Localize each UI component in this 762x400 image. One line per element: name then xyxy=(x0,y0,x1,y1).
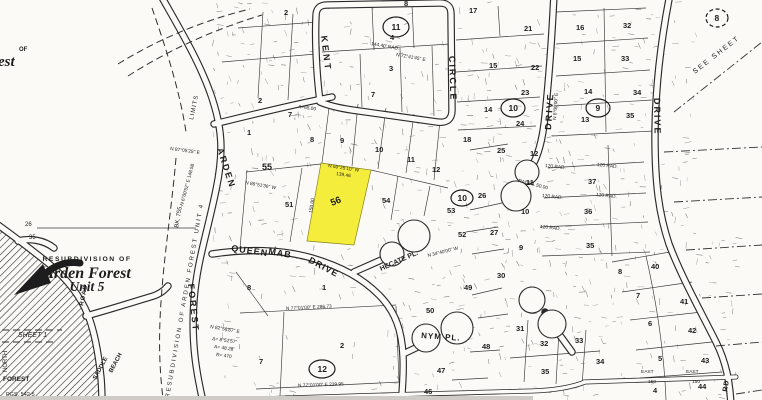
margin-note: 26 xyxy=(25,222,32,228)
lot-number: 48 xyxy=(482,342,490,351)
scan-strip xyxy=(0,396,533,400)
lot-number: 2 xyxy=(284,8,288,17)
lot-number: 34 xyxy=(596,357,605,366)
lot-number: 8 xyxy=(404,0,408,8)
lot-number: 46 xyxy=(424,387,432,396)
lot-number: 3 xyxy=(389,64,393,73)
lot-number: 24 xyxy=(516,119,525,128)
lot-number: 37 xyxy=(588,177,596,186)
lot-number: 14 xyxy=(584,87,593,96)
lot-number: 54 xyxy=(382,196,391,205)
lot-number: 36 xyxy=(584,207,592,216)
lot-number: 26 xyxy=(478,191,486,200)
lot-number: 40 xyxy=(651,262,659,271)
lot-number: 8 xyxy=(247,283,251,292)
plat-map-canvas: RESUBDIVISION OF Arden Forest Unit 5 OF … xyxy=(0,0,762,400)
lot-number: 34 xyxy=(633,88,642,97)
lot-number: 22 xyxy=(531,63,539,72)
lot-number: 52 xyxy=(458,230,466,239)
lot-number: 11 xyxy=(407,155,415,164)
circled-block-number: 12 xyxy=(318,364,328,374)
lot-number: 15 xyxy=(489,61,497,70)
street-label: CIRCLE xyxy=(447,56,459,102)
lot-number: 33 xyxy=(621,54,629,63)
lot-number: 18 xyxy=(463,135,471,144)
lot-number: 7 xyxy=(636,291,640,300)
lot-number: 51 xyxy=(285,200,293,209)
street-label: DRIVE xyxy=(652,98,663,136)
bearing-text: 150 xyxy=(692,379,700,385)
map-subtitle: RESUBDIVISION OF xyxy=(43,256,132,263)
lot-number: 33 xyxy=(575,336,583,345)
corner-fragment-est: est xyxy=(0,54,15,70)
lot-number: 8 xyxy=(618,267,622,276)
lot-number: 25 xyxy=(497,146,505,155)
lot-number: 53 xyxy=(447,206,455,215)
lot-number: 27 xyxy=(490,228,498,237)
lot-number: 7 xyxy=(288,110,292,119)
corner-fragment-of: OF xyxy=(19,47,28,53)
lot-number: 41 xyxy=(680,297,688,306)
lot-number: 7 xyxy=(371,90,375,99)
cul-de-sac xyxy=(398,220,430,252)
bearing-text: EAST xyxy=(641,369,654,375)
margin-note: FOREST xyxy=(3,376,29,383)
lot-number: 13 xyxy=(581,115,589,124)
lot-number: 47 xyxy=(437,366,445,375)
lot-number: 9 xyxy=(519,243,523,252)
circled-block-number: 11 xyxy=(392,22,401,32)
circled-block-number: 9 xyxy=(596,103,601,113)
paper-background xyxy=(0,0,762,400)
lot-number: 23 xyxy=(521,88,529,97)
bearing-text: EAST xyxy=(686,369,699,375)
cul-de-sac xyxy=(538,310,566,338)
lot-number: 43 xyxy=(701,356,709,365)
lot-number: 42 xyxy=(688,326,696,335)
lot-number: 14 xyxy=(484,105,493,114)
lot-number: 8 xyxy=(310,135,314,144)
lot-number: 6 xyxy=(648,319,652,328)
lot-number: 50 xyxy=(426,306,434,315)
lot-number: 35 xyxy=(541,367,549,376)
bearing-text: 150 xyxy=(648,379,656,385)
lot-number: 15 xyxy=(573,54,581,63)
margin-note: NORTH xyxy=(3,351,9,372)
lot-number: 12 xyxy=(530,149,538,158)
lot-number: 30 xyxy=(497,271,505,280)
lot-number: 31 xyxy=(516,324,524,333)
lot-number: 9 xyxy=(340,136,344,145)
plat-map: RESUBDIVISION OF Arden Forest Unit 5 OF … xyxy=(0,0,762,400)
circled-block-number: 8 xyxy=(715,13,720,23)
lot-number: 21 xyxy=(524,24,532,33)
lot-number: 10 xyxy=(521,207,529,216)
lot-number: 55 xyxy=(262,162,272,172)
circled-block-number: 10 xyxy=(458,193,468,203)
lot-number: 16 xyxy=(576,23,584,32)
lot-number: 35 xyxy=(586,241,594,250)
lot-number: 49 xyxy=(464,283,472,292)
lot-number: 32 xyxy=(623,21,631,30)
lot-number: 2 xyxy=(258,96,262,105)
margin-note: SHEET 1 xyxy=(18,332,47,339)
lot-number: 35 xyxy=(626,111,634,120)
lot-number: 2 xyxy=(340,341,344,350)
circled-block-number: 10 xyxy=(509,103,519,113)
lot-number: 32 xyxy=(540,339,548,348)
lot-number: 1 xyxy=(322,283,326,292)
lot-number: 5 xyxy=(658,354,662,363)
lot-number: 12 xyxy=(432,165,440,174)
lot-number: 1 xyxy=(247,128,251,137)
lot-number: 7 xyxy=(259,357,263,366)
lot-number: 17 xyxy=(469,6,477,15)
cul-de-sac xyxy=(519,287,545,313)
margin-note: 35 xyxy=(29,235,36,241)
lot-number: 10 xyxy=(375,145,383,154)
